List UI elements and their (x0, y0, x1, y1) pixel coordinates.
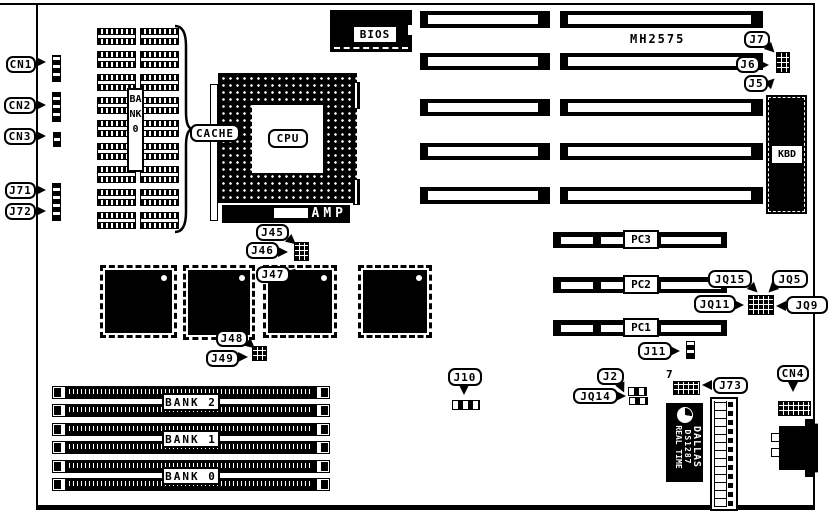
callout-cpu-label: CPU (277, 132, 300, 145)
callout-j7: J7 (744, 31, 770, 48)
kbd-label: KBD (771, 145, 803, 164)
chipset-qfp-chip (363, 270, 427, 333)
amp-label: AMP (312, 206, 347, 221)
kbd-controller-chip: KBD (766, 95, 807, 214)
callout-jq9-label: JQ9 (796, 299, 819, 312)
dip-chip (97, 212, 136, 229)
callout-pointer (36, 100, 46, 110)
dip-chip (97, 51, 136, 68)
motherboard-diagram: CN1 CN2 CN3 J71 J72 BANK0 CACHE CPU AMP (0, 0, 833, 520)
callout-j45-label: J45 (261, 226, 284, 239)
callout-j10: J10 (448, 368, 482, 386)
callout-cn4-label: CN4 (782, 367, 805, 380)
chipset-qfp-chip (105, 270, 172, 333)
rtc-brand: DALLAS (691, 409, 702, 485)
callout-cpu: CPU (268, 129, 308, 148)
callout-pointer (759, 60, 769, 70)
callout-j2-label: J2 (603, 370, 618, 383)
callout-pointer (238, 352, 248, 362)
bios-label: BIOS (352, 25, 398, 44)
bank1-label: BANK 1 (162, 430, 220, 448)
callout-pointer (278, 247, 288, 257)
callout-j72: J72 (5, 203, 36, 220)
callout-jq11: JQ11 (694, 295, 736, 313)
callout-jq14-label: JQ14 (580, 390, 611, 403)
callout-j71-label: J71 (9, 184, 32, 197)
callout-pointer (36, 131, 46, 141)
callout-cn1-label: CN1 (10, 58, 33, 71)
keyboard-din-port-shell (805, 419, 818, 477)
callout-j6: J6 (736, 56, 760, 73)
jumper-jq14 (629, 397, 648, 405)
pin-header-cn2 (52, 92, 61, 122)
callout-jq15: JQ15 (708, 270, 752, 288)
callout-cn2: CN2 (4, 97, 36, 114)
isa-slot (560, 99, 763, 116)
callout-j2: J2 (597, 368, 624, 385)
callout-jq5-label: JQ5 (779, 273, 802, 286)
bios-label-text: BIOS (360, 28, 391, 41)
callout-pointer (702, 380, 712, 390)
isa-slot (560, 187, 763, 204)
callout-cn4: CN4 (777, 365, 809, 382)
rtc-type: REAL TIME (673, 409, 682, 485)
isa-slot (420, 53, 550, 70)
pc3-slot: PC3 (553, 232, 727, 248)
header-cn4 (778, 401, 811, 416)
bank0-label-text: BANK 0 (165, 470, 217, 483)
rtc-chip: DALLAS DS1287 REAL TIME (666, 403, 703, 482)
pc1-label-text: PC1 (631, 321, 651, 334)
rtc-chip-marking: DALLAS DS1287 REAL TIME (666, 409, 702, 485)
isa-slot (560, 143, 763, 160)
jumper-block-j5-j6-j7 (776, 52, 790, 73)
isa-slot (420, 11, 550, 28)
callout-j71: J71 (5, 182, 36, 199)
pc1-slot: PC1 (553, 320, 727, 336)
kbd-label-text: KBD (778, 149, 796, 160)
jumper-block-j45-j46-j47 (294, 242, 309, 261)
pin-header-j71-j72 (52, 183, 61, 221)
power-connector-pins (714, 401, 727, 507)
bank1-label-text: BANK 1 (165, 433, 217, 446)
bios-socket-edge (334, 47, 408, 49)
bank2-label: BANK 2 (162, 393, 220, 411)
callout-j47: J47 (256, 266, 290, 283)
callout-j6-label: J6 (740, 58, 755, 71)
pc3-label-text: PC3 (631, 233, 651, 246)
callout-cn3-label: CN3 (9, 130, 32, 143)
board-part-number: MH2575 (630, 32, 685, 46)
dip-chip (97, 28, 136, 45)
cache-bank0-vertical-label: BANK0 (127, 88, 144, 172)
callout-j49-label: J49 (211, 352, 234, 365)
callout-j45: J45 (256, 224, 289, 241)
jumper-j2 (628, 387, 647, 396)
jumper-j11 (686, 341, 695, 359)
callout-j10-label: J10 (454, 371, 477, 384)
callout-j11-label: J11 (644, 345, 667, 358)
isa-slot (560, 11, 763, 28)
callout-pointer (776, 301, 786, 311)
callout-j5: J5 (744, 75, 768, 92)
callout-jq9: JQ9 (786, 296, 828, 314)
pin-header-cn3 (53, 132, 61, 147)
amp-window (274, 208, 308, 218)
zif-lever-bar (210, 84, 218, 221)
callout-j72-label: J72 (9, 205, 32, 218)
board-outline-top-extension (0, 3, 36, 5)
callout-pointer (36, 185, 46, 195)
isa-slot (420, 143, 550, 160)
power-connector (710, 397, 738, 511)
callout-j73-label: J73 (719, 379, 742, 392)
callout-j7-label: J7 (749, 33, 764, 46)
callout-pointer (36, 57, 46, 67)
callout-j46: J46 (246, 242, 279, 259)
callout-jq14: JQ14 (573, 388, 618, 404)
socket-clip (353, 179, 360, 205)
amp-regulator: AMP (222, 205, 350, 223)
callout-j46-label: J46 (251, 244, 274, 257)
rtc-part-number: DS1287 (682, 409, 691, 485)
callout-j49: J49 (206, 350, 239, 367)
callout-pointer (36, 206, 46, 216)
bank2-label-text: BANK 2 (165, 396, 217, 409)
callout-cache: CACHE (190, 124, 240, 142)
isa-slot (420, 99, 550, 116)
jumper-j10 (452, 400, 480, 410)
callout-j48-label: J48 (221, 332, 244, 345)
keyboard-din-port (779, 426, 807, 470)
jumper-block-jq (748, 295, 774, 315)
callout-j5-label: J5 (748, 77, 763, 90)
callout-cn3: CN3 (4, 128, 36, 145)
pin7-marker: 7 (666, 368, 673, 381)
callout-pointer (788, 382, 798, 392)
pc2-label: PC2 (623, 275, 659, 294)
pin-header-cn1 (52, 55, 61, 82)
callout-cn1: CN1 (6, 56, 36, 73)
isa-slot (560, 53, 763, 70)
callout-j48: J48 (216, 330, 248, 347)
callout-jq5: JQ5 (772, 270, 808, 288)
power-connector-keys (728, 402, 733, 506)
callout-cn2-label: CN2 (9, 99, 32, 112)
pc3-label: PC3 (623, 230, 659, 249)
callout-jq15-label: JQ15 (715, 273, 746, 286)
bank0-label: BANK 0 (162, 467, 220, 485)
callout-j73: J73 (713, 377, 748, 394)
socket-clip (353, 82, 360, 109)
callout-jq11-label: JQ11 (700, 298, 731, 311)
chipset-qfp-chip (188, 270, 250, 335)
callout-cache-label: CACHE (196, 127, 234, 140)
din-port-tab (771, 448, 780, 457)
dip-chip (97, 189, 136, 206)
callout-j47-label: J47 (262, 268, 285, 281)
isa-slot (420, 187, 550, 204)
din-port-tab (771, 433, 780, 442)
bios-notch (408, 25, 414, 35)
pc1-label: PC1 (623, 318, 659, 337)
header-j73 (673, 381, 700, 395)
callout-j11: J11 (638, 342, 672, 360)
pc2-slot: PC2 (553, 277, 727, 293)
callout-pointer (459, 385, 469, 395)
pc2-label-text: PC2 (631, 278, 651, 291)
